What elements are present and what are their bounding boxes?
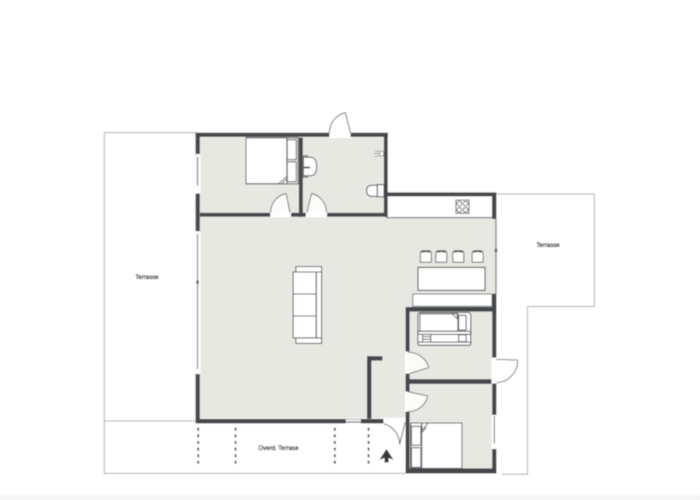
svg-text:Terrasse: Terrasse [536, 242, 560, 249]
svg-text:Terrasse: Terrasse [135, 274, 159, 281]
svg-text:Overd. Terrase: Overd. Terrase [258, 445, 299, 452]
